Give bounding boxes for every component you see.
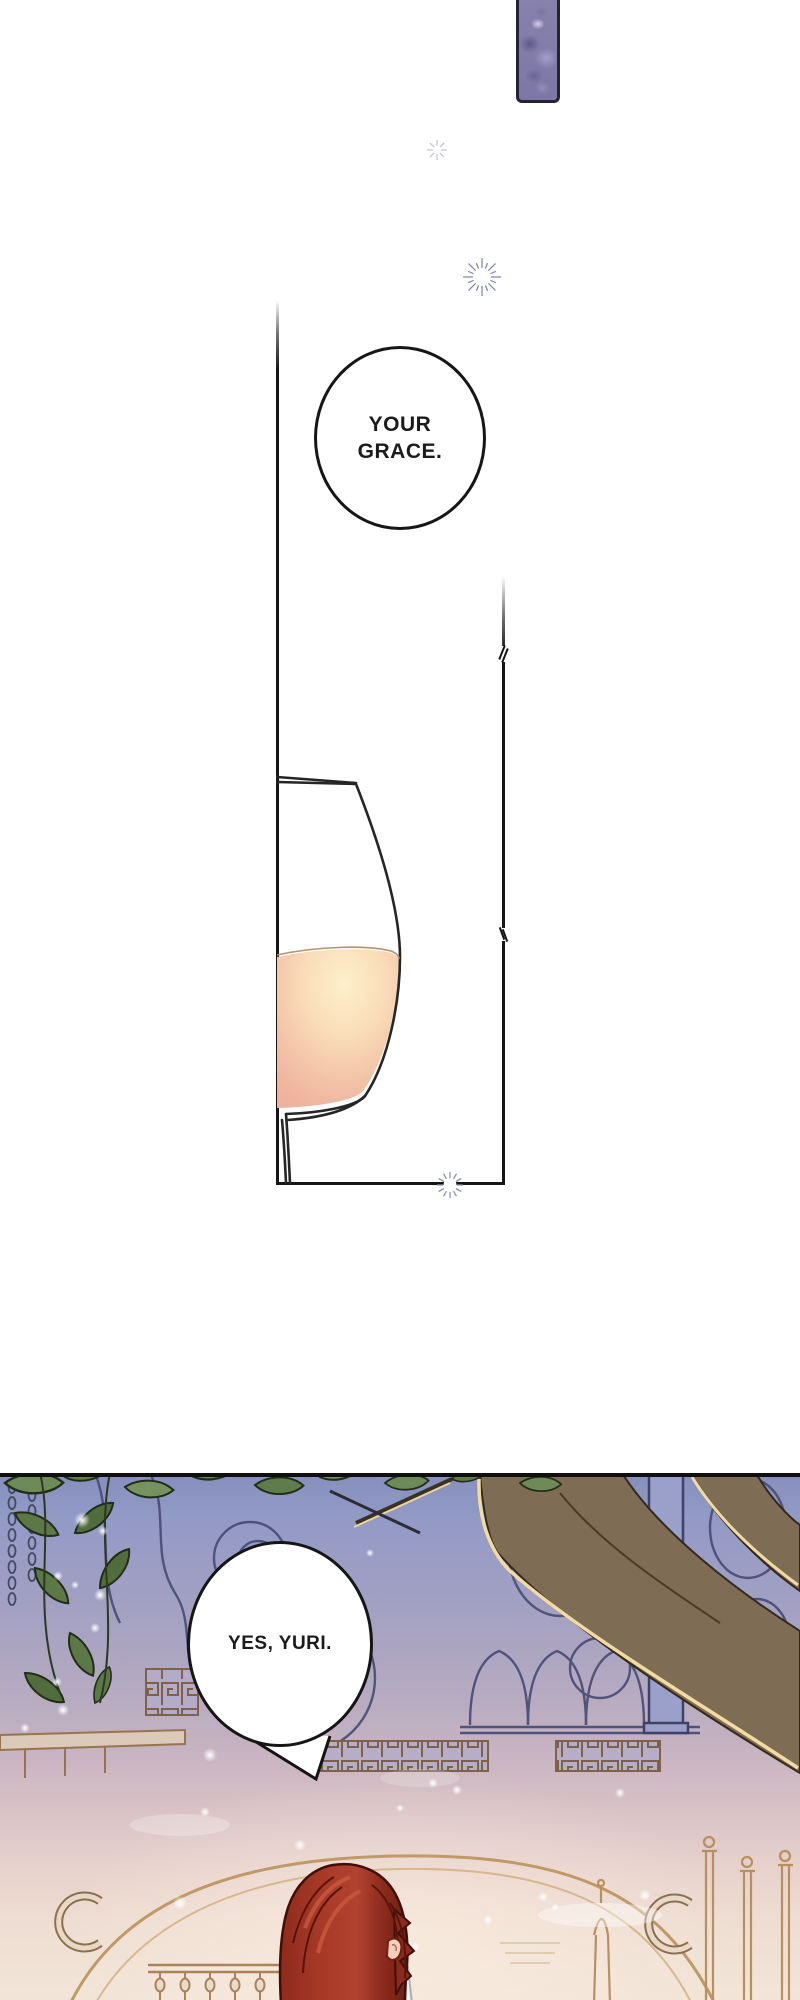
garden-scene [0, 1473, 800, 2000]
starburst-icon [458, 253, 506, 301]
vine-chains [9, 1481, 36, 1605]
trellis-posts [702, 1837, 793, 2000]
comic-page: YOUR GRACE. [0, 0, 800, 2000]
scene-artwork [0, 1473, 800, 2000]
spire [594, 1880, 610, 2000]
speech-bubble-yes-yuri: YES, YURI. [187, 1541, 373, 1747]
hair [280, 1864, 407, 2000]
wine-fill [277, 949, 399, 1108]
character-yuri [280, 1864, 414, 2000]
starry-panel-thumbnail [516, 0, 560, 103]
speech-text-yes-yuri: YES, YURI. [228, 1632, 332, 1657]
speech-text-your-grace: YOUR GRACE. [345, 411, 455, 466]
ear [387, 1939, 401, 1960]
border-sparkle-icon [432, 1167, 468, 1203]
sparkle-icon [425, 138, 449, 162]
speech-bubble-your-grace: YOUR GRACE. [314, 346, 486, 530]
